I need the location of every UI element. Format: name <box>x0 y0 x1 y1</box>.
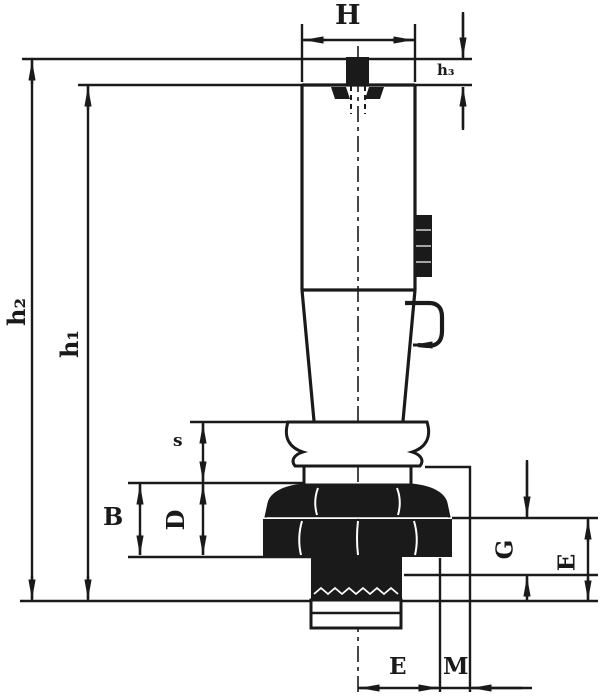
dim-label-B: B <box>103 505 123 529</box>
dim-label-s: s <box>173 433 183 450</box>
dim-label-h2: h₂ <box>5 287 29 337</box>
dimension-arrows <box>32 14 588 688</box>
dim-label-H: H <box>335 2 361 29</box>
chamfer-left <box>331 87 350 99</box>
dim-label-E-side: E <box>556 538 579 588</box>
dim-label-D: D <box>164 495 188 545</box>
dim-label-M-bottom: M <box>443 655 468 678</box>
hex-dome <box>265 484 450 517</box>
drawing-canvas <box>0 0 600 700</box>
knurl-band <box>415 215 432 277</box>
collar-bead <box>286 422 428 466</box>
dim-label-h3: h₃ <box>437 63 454 78</box>
chamfer-right <box>365 87 384 99</box>
dim-label-h1: h₁ <box>58 319 82 369</box>
dim-label-E-bottom: E <box>389 655 407 678</box>
part-outline <box>263 46 452 692</box>
dimension-lines <box>32 12 588 688</box>
dim-label-G: G <box>494 525 517 575</box>
drawing-stage: H h₃ h₂ h₁ s B D G E E M <box>0 0 600 700</box>
top-boss <box>346 57 369 84</box>
